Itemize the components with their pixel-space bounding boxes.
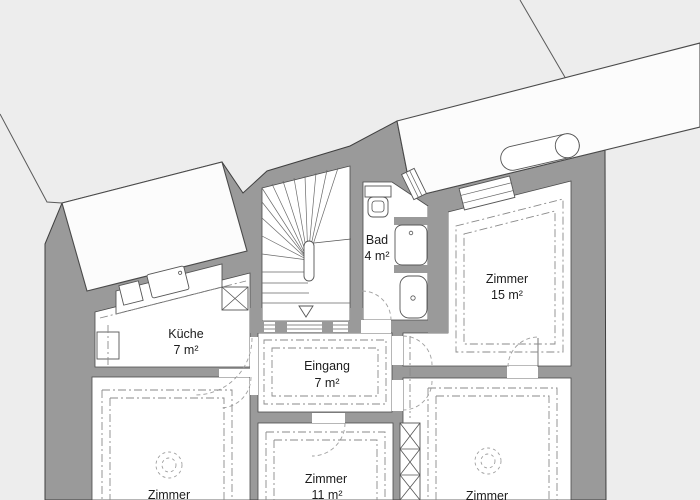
stair-newel-post <box>304 241 314 281</box>
room-area-zimmer11: 11 m² <box>311 488 342 500</box>
door-zimmer-br-opening <box>392 380 403 411</box>
room-label-zimmer-br: Zimmer <box>466 489 508 500</box>
stair-wall-corner-left <box>250 308 262 333</box>
room-label-zimmer15: Zimmer <box>486 272 528 286</box>
bathtub-icon <box>400 276 427 318</box>
door-zimmer11-opening <box>312 413 345 423</box>
wall-bad-zimmer15 <box>428 201 448 333</box>
kitchen-shaft <box>222 287 248 310</box>
room-label-kueche: Küche <box>168 327 203 341</box>
door-zimmer-bl-opening <box>219 369 251 377</box>
door-bad-opening <box>361 320 391 333</box>
room-label-bad: Bad <box>366 233 388 247</box>
sink-niche-wall-top <box>394 217 428 225</box>
duct-shaft <box>400 423 420 500</box>
room-label-zimmer-bl: Zimmer <box>148 488 190 500</box>
room-area-zimmer15: 15 m² <box>491 288 523 302</box>
sink-niche-wall-bottom <box>394 265 428 273</box>
room-zimmer-bl-floor <box>92 377 250 500</box>
floor-plan: Küche 7 m² Bad 4 m² Zimmer 15 m² Eingang… <box>0 0 700 500</box>
stair-glazing-gap <box>287 322 322 332</box>
kitchen-stove <box>119 281 143 305</box>
door-corridor-opening <box>392 336 403 365</box>
room-area-bad: 4 m² <box>365 249 390 263</box>
room-area-eingang: 7 m² <box>315 376 340 390</box>
door-zimmer15-opening <box>507 366 538 378</box>
stair-glazing-gap <box>264 322 275 332</box>
room-label-zimmer11: Zimmer <box>305 472 347 486</box>
toilet-icon <box>368 197 388 217</box>
stair-glazing-gap <box>333 322 348 332</box>
room-area-kueche: 7 m² <box>174 343 199 357</box>
toilet-cistern-icon <box>365 186 391 197</box>
floor-plan-canvas: Küche 7 m² Bad 4 m² Zimmer 15 m² Eingang… <box>0 0 700 500</box>
room-label-eingang: Eingang <box>304 359 350 373</box>
